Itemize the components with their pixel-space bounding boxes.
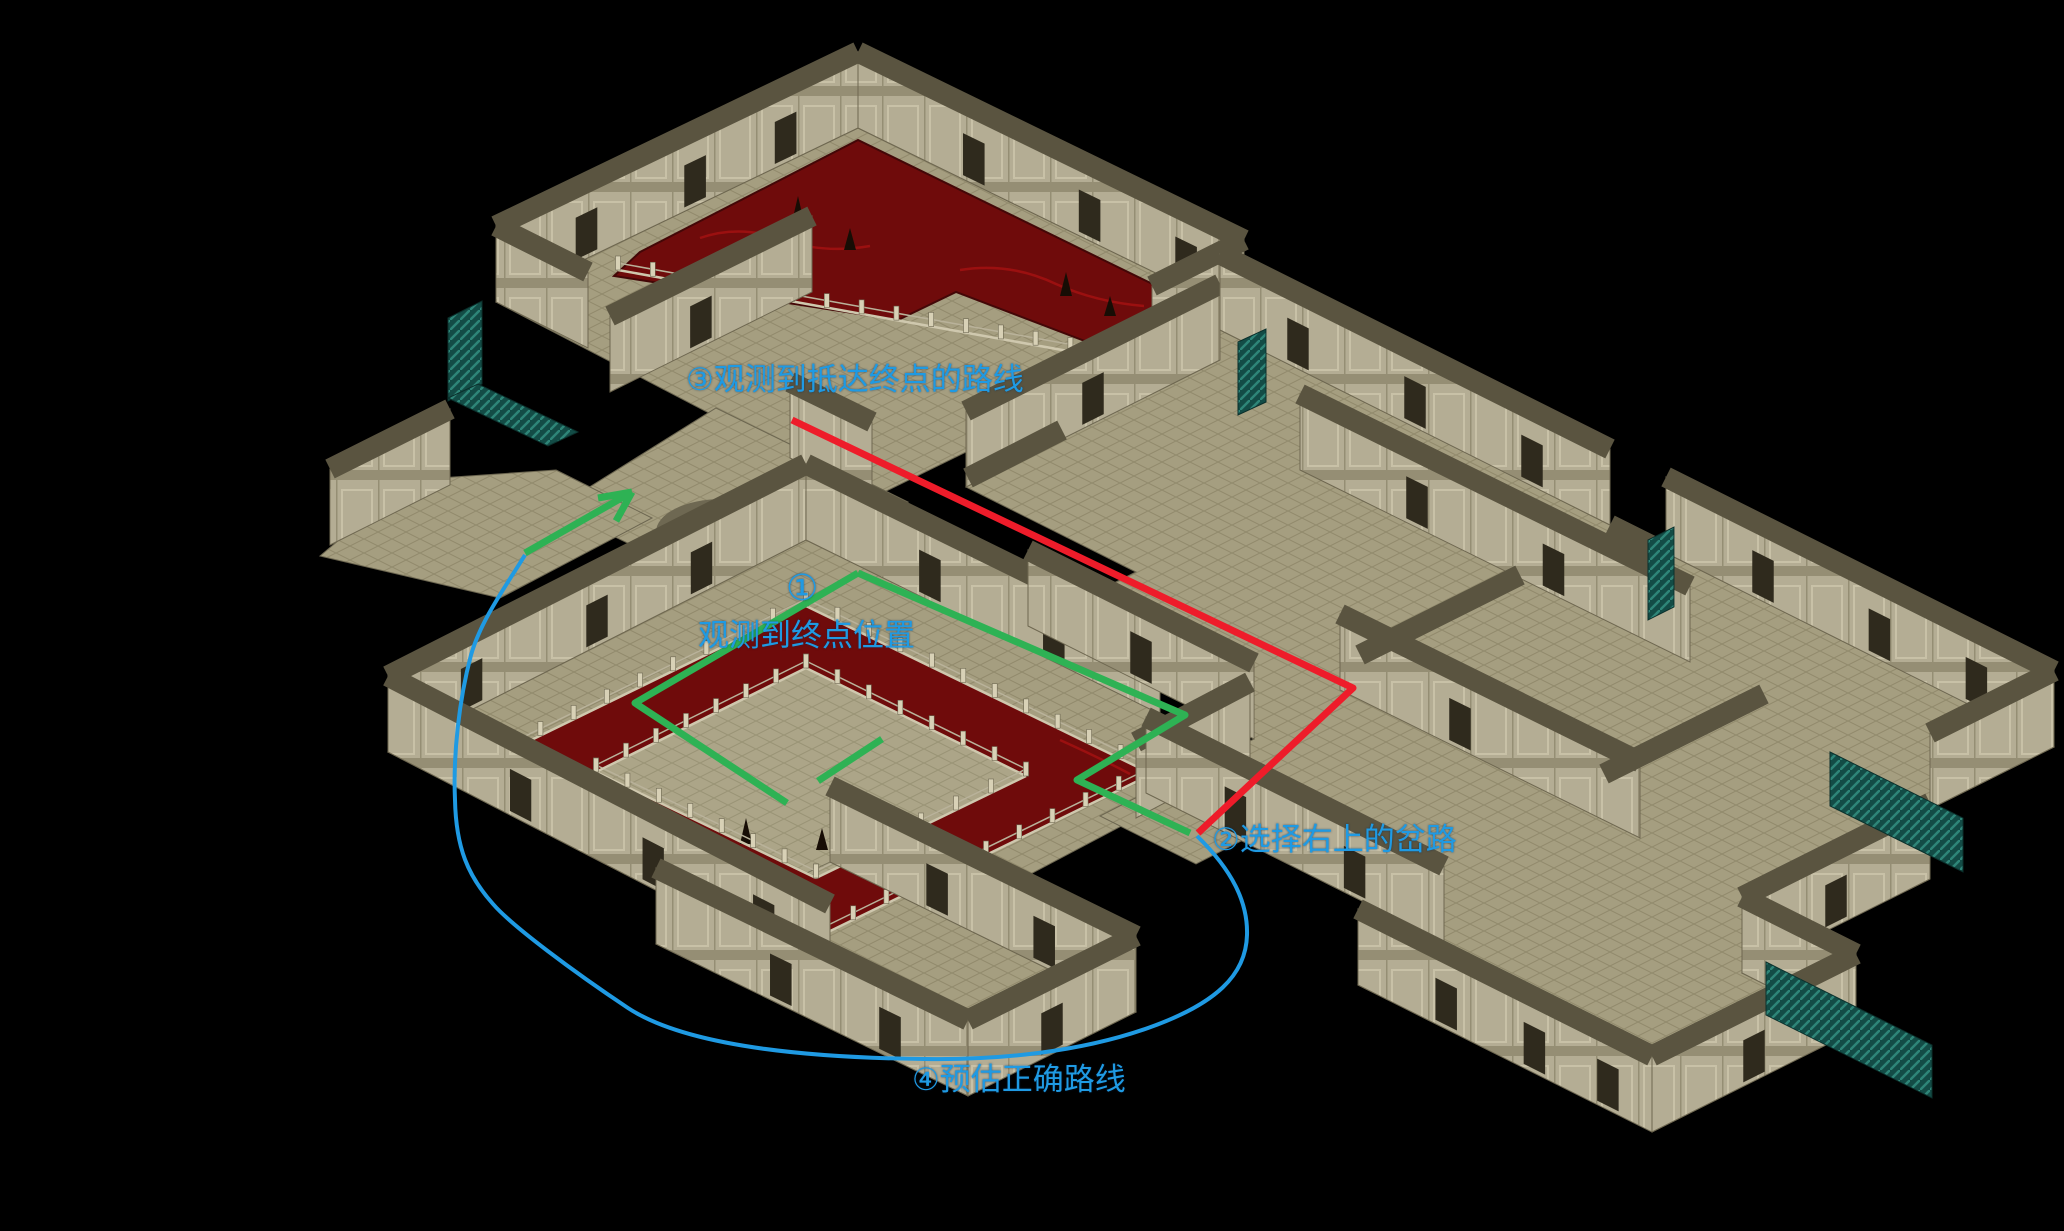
annotation-step4: ④预估正确路线 <box>912 1064 1126 1097</box>
annotation-step1-number: ① <box>786 570 818 608</box>
annotation-step1: 观测到终点位置 <box>698 620 915 653</box>
annotation-step3: ③观测到抵达终点的路线 <box>686 364 1024 397</box>
game-screenshot: ③观测到抵达终点的路线 ① 观测到终点位置 ②选择右上的岔路 ④预估正确路线 <box>0 0 2064 1231</box>
annotation-step2: ②选择右上的岔路 <box>1212 824 1457 857</box>
